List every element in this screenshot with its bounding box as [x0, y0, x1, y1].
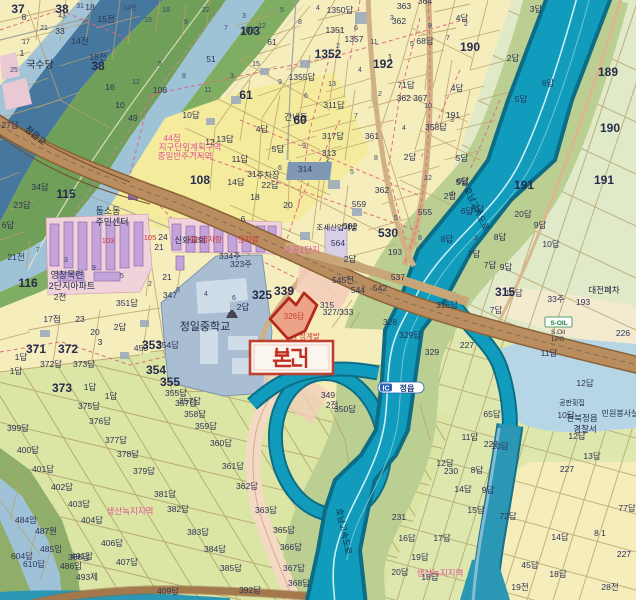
svg-text:191: 191 [514, 178, 534, 192]
svg-text:2: 2 [148, 281, 152, 288]
svg-text:49: 49 [128, 113, 138, 123]
svg-text:378답: 378답 [117, 449, 139, 459]
svg-text:생산녹지지역: 생산녹지지역 [107, 506, 154, 516]
svg-text:13답: 13답 [583, 451, 600, 461]
svg-text:377답: 377답 [105, 435, 127, 445]
svg-text:8답: 8답 [494, 232, 507, 242]
svg-text:409답: 409답 [157, 586, 179, 596]
svg-text:193: 193 [388, 247, 402, 257]
svg-text:34답: 34답 [31, 182, 48, 192]
svg-text:5: 5 [158, 61, 162, 68]
svg-text:226: 226 [616, 328, 630, 338]
svg-text:5답: 5답 [515, 94, 528, 104]
svg-text:316답: 316답 [436, 300, 458, 310]
svg-text:371: 371 [26, 342, 46, 356]
svg-text:18: 18 [85, 2, 95, 12]
svg-text:493제: 493제 [76, 572, 98, 582]
svg-text:7: 7 [36, 247, 40, 254]
svg-text:38: 38 [91, 59, 105, 73]
svg-text:358답: 358답 [184, 409, 206, 419]
svg-text:315: 315 [495, 285, 515, 299]
svg-text:115: 115 [56, 187, 76, 201]
svg-text:103: 103 [102, 236, 115, 245]
svg-text:542: 542 [373, 283, 387, 293]
svg-text:15: 15 [144, 17, 152, 24]
svg-text:9: 9 [92, 265, 96, 272]
svg-text:12: 12 [424, 175, 432, 182]
svg-text:339: 339 [274, 284, 294, 298]
svg-text:7: 7 [446, 35, 450, 42]
svg-text:3: 3 [98, 337, 103, 347]
svg-text:주공1단지: 주공1단지 [284, 245, 320, 255]
svg-text:486임: 486임 [60, 561, 82, 571]
svg-text:주차장: 주차장 [256, 170, 280, 180]
svg-text:383답: 383답 [187, 527, 209, 537]
svg-text:193: 193 [576, 297, 590, 307]
svg-text:20답: 20답 [514, 209, 531, 219]
svg-text:19답: 19답 [411, 552, 428, 562]
svg-text:28전: 28전 [601, 582, 618, 592]
svg-text:360답: 360답 [210, 438, 232, 448]
svg-text:영창목련: 영창목련 [50, 270, 83, 280]
svg-text:2단지아파트: 2단지아파트 [49, 281, 95, 291]
svg-text:17점: 17점 [43, 314, 60, 324]
svg-text:9: 9 [302, 143, 306, 150]
svg-text:11: 11 [370, 39, 377, 46]
svg-text:20답: 20답 [391, 567, 408, 577]
svg-text:71답: 71답 [397, 80, 414, 90]
svg-text:33주: 33주 [547, 294, 564, 304]
svg-text:14답: 14답 [551, 532, 568, 542]
svg-text:정읍: 정읍 [400, 383, 415, 393]
svg-text:9답: 9답 [534, 220, 547, 230]
svg-text:5답: 5답 [272, 144, 285, 154]
svg-text:362 367: 362 367 [397, 93, 428, 103]
svg-text:1답: 1답 [10, 366, 23, 376]
svg-text:325: 325 [252, 288, 272, 302]
svg-text:12: 12 [132, 79, 140, 86]
svg-text:9답: 9답 [500, 262, 513, 272]
svg-text:S.Oil: S.Oil [551, 329, 566, 336]
svg-text:108: 108 [153, 85, 167, 95]
svg-text:5: 5 [280, 7, 284, 14]
svg-text:12답: 12답 [576, 378, 593, 388]
svg-text:공판횟집: 공판횟집 [559, 398, 585, 407]
svg-text:15: 15 [252, 61, 260, 68]
svg-text:105: 105 [144, 233, 157, 242]
svg-text:8: 8 [182, 73, 186, 80]
svg-text:20: 20 [90, 327, 100, 337]
svg-text:7답: 7답 [468, 249, 481, 259]
svg-text:116: 116 [18, 276, 38, 290]
svg-text:329: 329 [425, 347, 439, 357]
svg-text:2답: 2답 [444, 191, 457, 201]
svg-text:376답: 376답 [89, 416, 111, 426]
svg-text:227: 227 [560, 464, 574, 474]
svg-text:61: 61 [267, 37, 277, 47]
svg-text:주민센터: 주민센터 [95, 217, 128, 227]
svg-text:21: 21 [162, 272, 172, 282]
svg-text:8: 8 [374, 155, 378, 162]
svg-text:18: 18 [162, 7, 170, 14]
svg-text:4: 4 [316, 5, 320, 12]
svg-text:6답: 6답 [2, 220, 15, 230]
svg-text:103: 103 [240, 24, 260, 38]
svg-text:2답: 2답 [507, 53, 520, 63]
svg-text:372: 372 [58, 342, 78, 356]
svg-text:357답: 357답 [179, 396, 201, 406]
svg-text:19전: 19전 [511, 582, 528, 592]
svg-text:4: 4 [204, 291, 208, 298]
svg-text:317답: 317답 [322, 131, 344, 141]
svg-text:11답: 11답 [462, 432, 479, 442]
svg-text:2답: 2답 [344, 254, 357, 264]
svg-text:399답: 399답 [7, 423, 29, 433]
svg-text:366답: 366답 [280, 542, 302, 552]
svg-text:392답: 392답 [239, 585, 261, 595]
svg-text:14전: 14전 [123, 3, 137, 12]
svg-text:7답: 7답 [490, 305, 503, 315]
svg-text:191: 191 [446, 110, 460, 120]
svg-text:6: 6 [304, 93, 308, 100]
svg-text:368답: 368답 [68, 552, 90, 562]
svg-text:10답: 10답 [182, 110, 199, 120]
svg-text:38: 38 [55, 2, 69, 16]
svg-text:227: 227 [484, 439, 498, 449]
svg-text:생산녹지지역: 생산녹지지역 [417, 568, 464, 578]
svg-text:11: 11 [204, 87, 211, 94]
svg-text:367답: 367답 [283, 563, 305, 573]
svg-text:6: 6 [232, 295, 236, 302]
svg-text:313: 313 [322, 148, 336, 158]
svg-text:362: 362 [375, 185, 389, 195]
svg-text:326답: 326답 [284, 311, 305, 321]
svg-text:청지엄: 청지엄 [238, 235, 259, 244]
svg-text:406답: 406답 [101, 538, 123, 548]
svg-text:402답: 402답 [51, 482, 73, 492]
svg-text:362: 362 [392, 16, 406, 26]
svg-text:407답: 407답 [116, 557, 138, 567]
svg-text:487원: 487원 [35, 526, 57, 536]
svg-text:363: 363 [397, 1, 411, 11]
svg-text:350답: 350답 [334, 404, 356, 414]
svg-text:189: 189 [598, 65, 618, 79]
svg-text:8 1: 8 1 [594, 528, 606, 538]
svg-text:민원봉사실: 민원봉사실 [602, 408, 636, 418]
svg-text:8답: 8답 [441, 234, 454, 244]
svg-text:68답: 68답 [416, 36, 433, 46]
svg-text:14답: 14답 [227, 177, 244, 187]
svg-text:3: 3 [64, 257, 68, 264]
svg-text:3: 3 [242, 13, 246, 20]
svg-text:5: 5 [350, 169, 354, 176]
svg-text:192: 192 [373, 57, 393, 71]
svg-text:401답: 401답 [32, 464, 54, 474]
svg-text:전북정읍: 전북정읍 [566, 413, 597, 423]
svg-text:21전: 21전 [7, 252, 24, 262]
svg-text:544: 544 [351, 285, 365, 295]
svg-text:경찰서: 경찰서 [573, 424, 596, 434]
svg-text:2: 2 [326, 157, 330, 164]
svg-text:18답: 18답 [549, 569, 566, 579]
svg-text:17답: 17답 [433, 533, 450, 543]
svg-text:1352: 1352 [315, 47, 342, 61]
svg-text:385답: 385답 [220, 563, 242, 573]
svg-text:4답: 4답 [456, 13, 469, 23]
svg-text:9답: 9답 [482, 485, 495, 495]
svg-text:358답: 358답 [425, 122, 447, 132]
svg-text:11답: 11답 [541, 348, 558, 358]
svg-text:22답: 22답 [261, 180, 278, 190]
svg-text:23: 23 [75, 314, 85, 324]
svg-text:14답: 14답 [454, 484, 471, 494]
svg-text:10답: 10답 [542, 239, 559, 249]
svg-text:9: 9 [184, 19, 188, 26]
svg-text:10: 10 [424, 103, 432, 110]
svg-text:379답: 379답 [133, 466, 155, 476]
svg-text:16: 16 [105, 82, 115, 92]
svg-text:5답: 5답 [456, 153, 469, 163]
svg-text:1357: 1357 [345, 34, 364, 44]
svg-text:45답: 45답 [521, 560, 538, 570]
svg-text:6: 6 [354, 25, 358, 32]
svg-text:1350답: 1350답 [327, 5, 354, 15]
svg-text:7: 7 [224, 25, 228, 32]
svg-text:227: 227 [460, 340, 474, 350]
svg-text:8: 8 [298, 19, 302, 26]
svg-text:4답: 4답 [256, 124, 269, 134]
svg-text:동소동: 동소동 [96, 206, 121, 216]
svg-text:373: 373 [52, 381, 72, 395]
svg-text:6답: 6답 [457, 176, 470, 186]
svg-text:60: 60 [293, 113, 307, 127]
svg-text:조세산업개발: 조세산업개발 [316, 222, 357, 232]
svg-text:403답: 403답 [68, 499, 90, 509]
svg-text:31: 31 [76, 3, 84, 10]
svg-text:349: 349 [321, 390, 335, 400]
svg-text:S-OIL: S-OIL [550, 320, 567, 327]
svg-text:315: 315 [320, 300, 334, 310]
svg-text:9: 9 [428, 23, 432, 30]
svg-text:382답: 382답 [167, 504, 189, 514]
svg-text:2답: 2답 [237, 302, 250, 312]
svg-text:372답: 372답 [40, 359, 62, 369]
svg-text:65답: 65답 [483, 409, 500, 419]
svg-text:4답: 4답 [451, 83, 464, 93]
svg-text:4: 4 [402, 125, 406, 132]
svg-text:555: 555 [418, 207, 432, 217]
svg-text:1: 1 [20, 48, 25, 58]
svg-text:2답: 2답 [114, 322, 127, 332]
svg-text:17: 17 [22, 39, 30, 46]
svg-text:6답: 6답 [542, 78, 555, 88]
svg-text:37: 37 [11, 2, 25, 16]
svg-text:2답: 2답 [404, 152, 417, 162]
svg-text:1355답: 1355답 [289, 72, 316, 82]
svg-text:347: 347 [163, 290, 177, 300]
svg-text:제2 꿈자람: 제2 꿈자람 [188, 235, 222, 244]
svg-text:7: 7 [354, 113, 358, 120]
svg-text:485임: 485임 [40, 544, 62, 554]
svg-text:23답: 23답 [13, 200, 30, 210]
svg-text:11답: 11답 [232, 154, 249, 164]
svg-text:365답: 365답 [273, 525, 295, 535]
svg-text:16답: 16답 [398, 533, 415, 543]
svg-text:24: 24 [158, 232, 168, 242]
svg-text:3답: 3답 [530, 4, 543, 14]
svg-text:61: 61 [239, 88, 253, 102]
svg-text:14전: 14전 [71, 36, 88, 46]
svg-text:10: 10 [115, 100, 125, 110]
svg-text:6: 6 [241, 214, 246, 224]
svg-text:329답: 329답 [399, 330, 421, 340]
svg-text:5: 5 [394, 215, 398, 222]
svg-text:191: 191 [594, 173, 614, 187]
svg-text:311답: 311답 [323, 100, 345, 110]
svg-text:4: 4 [358, 67, 362, 74]
svg-text:564: 564 [331, 238, 345, 248]
svg-text:21: 21 [40, 25, 48, 32]
svg-text:362답: 362답 [236, 481, 258, 491]
svg-text:20: 20 [283, 200, 293, 210]
svg-text:368답: 368답 [288, 578, 310, 588]
svg-text:1351: 1351 [326, 25, 345, 35]
svg-text:15답: 15답 [467, 505, 484, 515]
svg-text:중일반주거지역: 중일반주거지역 [158, 151, 213, 161]
svg-text:IC: IC [383, 386, 390, 393]
svg-text:190: 190 [600, 121, 620, 135]
svg-text:1답: 1답 [84, 382, 97, 392]
svg-text:27답: 27답 [1, 120, 18, 130]
svg-text:384답: 384답 [204, 544, 226, 554]
svg-text:2: 2 [378, 91, 382, 98]
svg-text:3: 3 [230, 73, 234, 80]
svg-text:108: 108 [190, 173, 210, 187]
svg-text:537: 537 [391, 272, 405, 282]
svg-text:381답: 381답 [154, 489, 176, 499]
svg-text:2전: 2전 [54, 292, 67, 302]
svg-text:25: 25 [10, 67, 18, 74]
svg-text:8답: 8답 [471, 465, 484, 475]
svg-text:5: 5 [410, 41, 414, 48]
svg-text:545전: 545전 [332, 275, 354, 285]
svg-text:72답: 72답 [499, 511, 516, 521]
svg-text:LPG: LPG [551, 336, 564, 343]
svg-text:8: 8 [418, 235, 422, 242]
svg-text:353: 353 [142, 338, 162, 352]
svg-text:355: 355 [160, 375, 180, 389]
svg-text:22: 22 [202, 7, 210, 14]
svg-text:18: 18 [250, 192, 260, 202]
svg-text:530: 530 [378, 226, 398, 240]
svg-text:15전: 15전 [97, 14, 114, 24]
svg-text:361: 361 [365, 131, 379, 141]
svg-text:361답: 361답 [222, 461, 244, 471]
svg-text:559: 559 [352, 199, 366, 209]
svg-text:484암: 484암 [15, 515, 37, 525]
svg-text:227: 227 [617, 549, 631, 559]
svg-text:364: 364 [418, 0, 432, 6]
svg-text:정일중학교: 정일중학교 [180, 319, 231, 333]
svg-text:375답: 375답 [78, 401, 100, 411]
svg-text:190: 190 [460, 40, 480, 54]
svg-text:230: 230 [444, 466, 458, 476]
svg-text:3: 3 [474, 235, 478, 242]
svg-text:5: 5 [120, 273, 124, 280]
svg-text:323주: 323주 [230, 259, 252, 269]
svg-text:351답: 351답 [116, 298, 138, 308]
svg-text:1답: 1답 [105, 391, 118, 401]
svg-text:77답: 77답 [618, 503, 635, 513]
svg-text:9: 9 [278, 79, 282, 86]
svg-text:404답: 404답 [81, 515, 103, 525]
svg-text:328: 328 [383, 317, 397, 327]
svg-text:373답: 373답 [73, 359, 95, 369]
svg-text:231: 231 [392, 512, 406, 522]
svg-text:국수당: 국수당 [26, 59, 54, 71]
svg-text:13: 13 [328, 81, 336, 88]
svg-text:51: 51 [206, 54, 216, 64]
svg-text:363답: 363답 [255, 505, 277, 515]
svg-text:610답: 610답 [23, 559, 45, 569]
svg-text:359답: 359답 [195, 421, 217, 431]
svg-text:33: 33 [55, 26, 65, 36]
svg-text:7답: 7답 [484, 260, 497, 270]
svg-text:314: 314 [298, 164, 312, 174]
svg-text:400답: 400답 [17, 445, 39, 455]
svg-text:대전폐차: 대전폐차 [588, 285, 619, 295]
svg-text:21: 21 [154, 242, 164, 252]
